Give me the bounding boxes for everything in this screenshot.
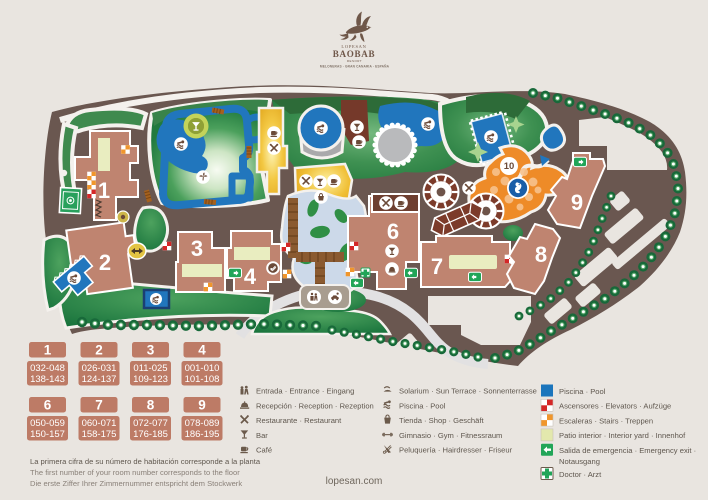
svg-text:3: 3 [147,343,155,358]
svg-text:Doctor · Arzt: Doctor · Arzt [559,470,602,479]
svg-text:Die erste Ziffer Ihrer Zimmern: Die erste Ziffer Ihrer Zimmernummer ents… [30,479,242,488]
svg-text:6: 6 [387,219,399,244]
svg-text:LOPESAN: LOPESAN [341,44,366,49]
svg-text:8: 8 [147,398,155,413]
svg-text:078-089: 078-089 [185,418,220,429]
svg-text:026-031: 026-031 [82,363,117,374]
svg-text:La primera cifra de su número: La primera cifra de su número de habitac… [30,457,261,466]
svg-text:101-108: 101-108 [185,374,220,385]
svg-text:011-025: 011-025 [133,363,167,374]
svg-text:Bar: Bar [256,431,268,440]
svg-text:Tienda · Shop · Geschäft: Tienda · Shop · Geschäft [399,416,484,425]
svg-text:Entrada · Entrance · Eingang: Entrada · Entrance · Eingang [256,387,354,396]
svg-text:032-048: 032-048 [30,363,65,374]
svg-text:Salida de emergencia · Emergen: Salida de emergencia · Emergency exit · [559,446,696,455]
svg-text:001-010: 001-010 [185,363,220,374]
svg-text:7: 7 [95,398,103,413]
svg-text:MELONERAS · GRAN CANARIA · ESP: MELONERAS · GRAN CANARIA · ESPAÑA [320,63,390,68]
svg-text:124-137: 124-137 [82,374,117,385]
svg-text:050-059: 050-059 [30,418,65,429]
svg-text:Escaleras · Stairs · Treppen: Escaleras · Stairs · Treppen [559,416,653,425]
svg-text:Café: Café [256,446,272,455]
svg-text:Piscina · Pool: Piscina · Pool [559,387,606,396]
svg-text:Ascensores · Elevators · Aufzü: Ascensores · Elevators · Aufzüge [559,402,671,411]
svg-text:Piscina · Pool: Piscina · Pool [399,401,446,410]
svg-text:138-143: 138-143 [30,374,65,385]
svg-text:Solarium · Sun Terrace · Sonne: Solarium · Sun Terrace · Sonnenterrasse [399,387,537,396]
svg-text:10: 10 [504,161,515,172]
svg-text:072-077: 072-077 [133,418,168,429]
svg-text:Patio interior · Interior yard: Patio interior · Interior yard · Innenho… [559,431,686,440]
svg-text:6: 6 [44,398,52,413]
svg-text:9: 9 [198,398,206,413]
svg-text:1: 1 [44,343,52,358]
svg-text:The first number of your room: The first number of your room number cor… [30,468,240,477]
svg-text:4: 4 [244,264,257,289]
svg-text:2: 2 [95,343,103,358]
svg-text:BAOBAB: BAOBAB [333,49,376,59]
svg-text:1: 1 [98,178,110,203]
svg-text:Gimnasio · Gym · Fitnessraum: Gimnasio · Gym · Fitnessraum [399,431,502,440]
svg-text:060-071: 060-071 [82,418,117,429]
svg-text:Recepción · Reception · Rezept: Recepción · Reception · Rezeption [256,401,374,410]
svg-text:Restaurante · Restaurant: Restaurante · Restaurant [256,416,342,425]
svg-text:lopesan.com: lopesan.com [326,476,383,487]
svg-text:Notausgang: Notausgang [559,457,600,466]
svg-text:158-175: 158-175 [82,429,117,440]
svg-text:2: 2 [99,250,111,275]
svg-text:7: 7 [431,254,443,279]
svg-text:109-123: 109-123 [133,374,168,385]
svg-text:3: 3 [191,236,203,261]
svg-text:8: 8 [535,242,547,267]
svg-text:RESORT: RESORT [347,59,362,63]
svg-text:186-195: 186-195 [185,429,220,440]
svg-text:Peluquería · Hairdresser · Fri: Peluquería · Hairdresser · Friseur [399,446,513,455]
svg-text:9: 9 [571,190,583,215]
svg-text:176-185: 176-185 [133,429,168,440]
svg-text:150-157: 150-157 [30,429,65,440]
svg-text:4: 4 [198,343,206,358]
